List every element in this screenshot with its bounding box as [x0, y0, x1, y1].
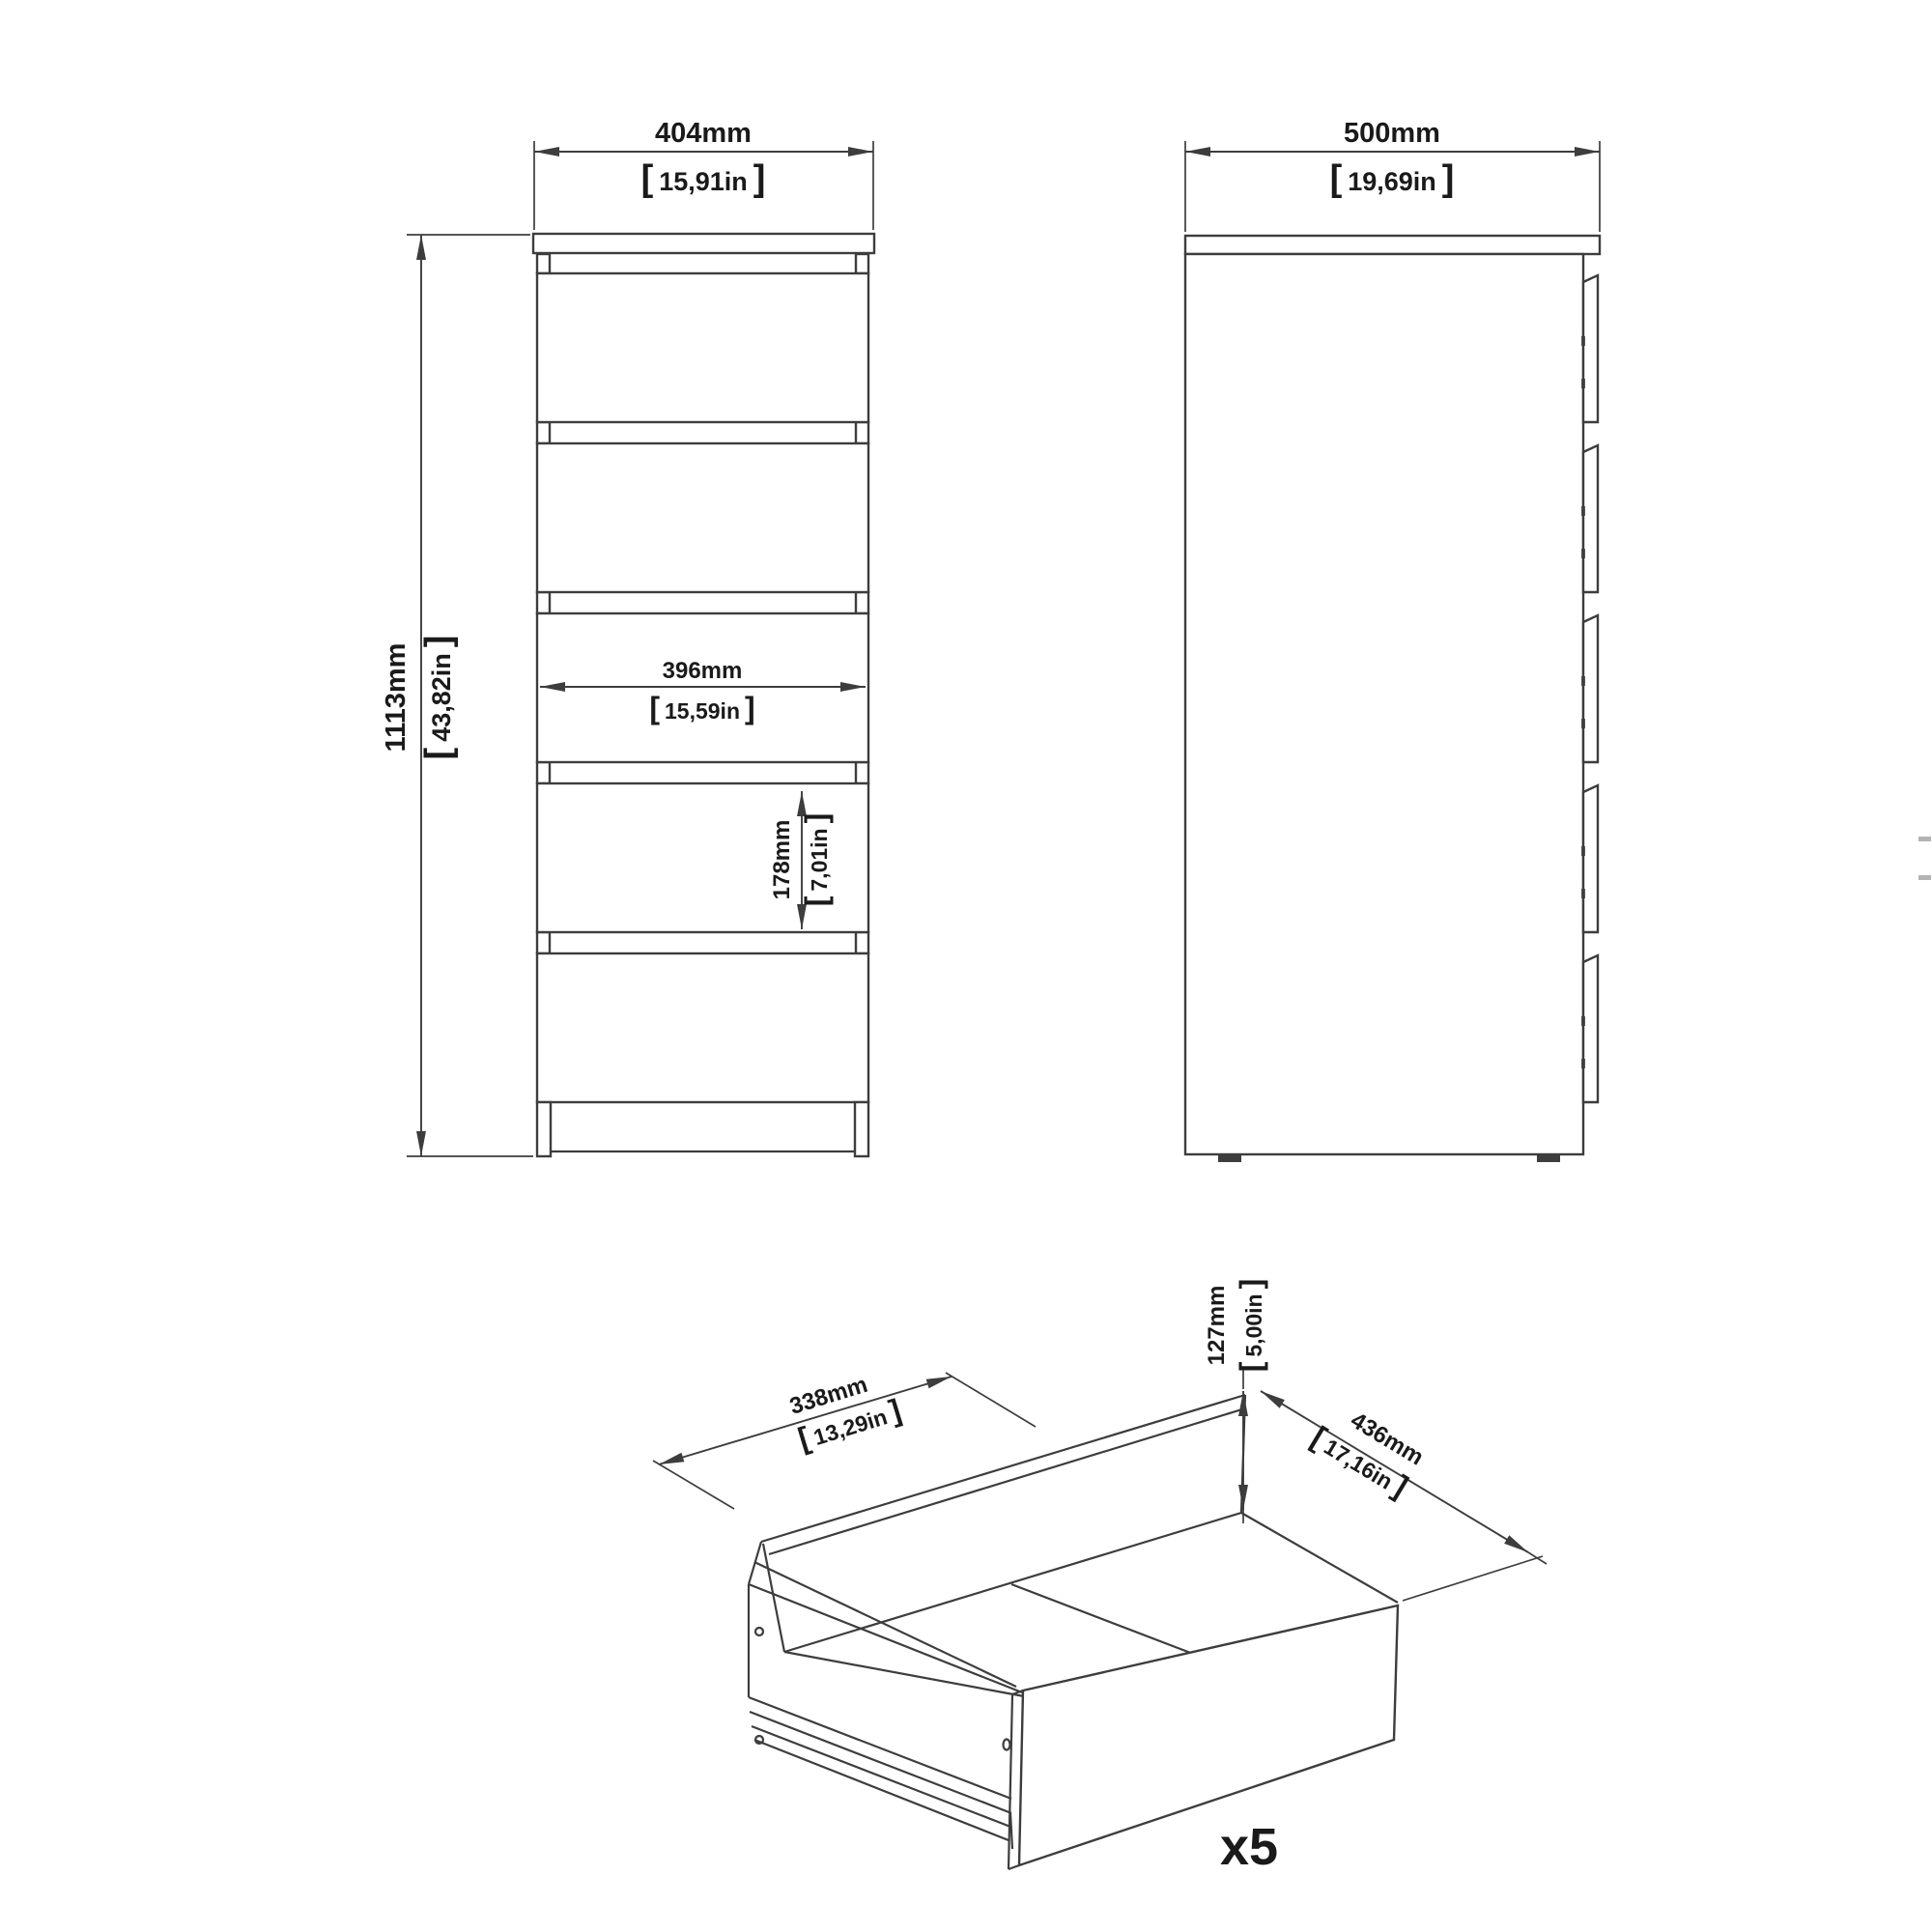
front-view: [533, 234, 874, 1156]
technical-drawing-sheet: 404mm [15,91in] 1113mm [43,82in] 396mm […: [0, 0, 1932, 1932]
drawer-inner-height-mm-label: 127mm: [1204, 1286, 1230, 1366]
front-drawer-2: [537, 443, 868, 592]
front-height-mm-label: 1113mm: [381, 643, 412, 753]
screw-hole: [1004, 1740, 1010, 1750]
drawer-detail-view: [749, 1395, 1398, 1869]
side-depth-dimension: 500mm [19,69in]: [1185, 118, 1600, 232]
side-body-panel: [1185, 254, 1583, 1154]
side-top-panel: [1185, 236, 1600, 254]
side-drawer-front-edges: [1581, 275, 1598, 1102]
front-drawer-1: [537, 273, 868, 422]
drawer-height-mm-label: 178mm: [769, 820, 795, 900]
drawer-slide-rail: [750, 1712, 1012, 1849]
dimension-drawing: 404mm [15,91in] 1113mm [43,82in] 396mm […: [0, 0, 1932, 1932]
front-width-in-label: [15,91in]: [641, 158, 766, 199]
screw-hole: [755, 1628, 763, 1635]
front-drawer-5: [537, 953, 868, 1102]
front-drawer-3: [537, 613, 868, 762]
edge-artifact-marks: [1918, 837, 1931, 880]
front-feet: [537, 1102, 868, 1156]
side-view: [1185, 236, 1600, 1162]
front-width-dimension: 404mm [15,91in]: [534, 118, 873, 230]
side-depth-in-label: [19,69in]: [1330, 158, 1455, 199]
drawer-front-panel: [1004, 1605, 1399, 1869]
drawer-quantity-label: x5: [1220, 1818, 1278, 1876]
front-top-panel: [533, 234, 874, 253]
front-height-dimension: 1113mm [43,82in]: [381, 235, 533, 1156]
drawer-bottom-seam: [1011, 1584, 1193, 1654]
front-width-mm-label: 404mm: [655, 118, 752, 149]
front-height-in-label: [43,82in]: [418, 636, 459, 760]
drawer-depth-dimension: 436mm [17,16in]: [1261, 1391, 1547, 1601]
drawer-inner-height-dimension: 127mm [5,00in]: [1204, 1279, 1268, 1523]
side-depth-mm-label: 500mm: [1344, 118, 1440, 149]
drawer-inner-width-dimension: 338mm [13,29in]: [653, 1364, 1036, 1509]
drawer-left-side-panel: [749, 1542, 1022, 1849]
drawer-width-mm-label: 396mm: [663, 658, 743, 684]
drawer-inner-height-in-label: [5,00in]: [1234, 1279, 1268, 1373]
